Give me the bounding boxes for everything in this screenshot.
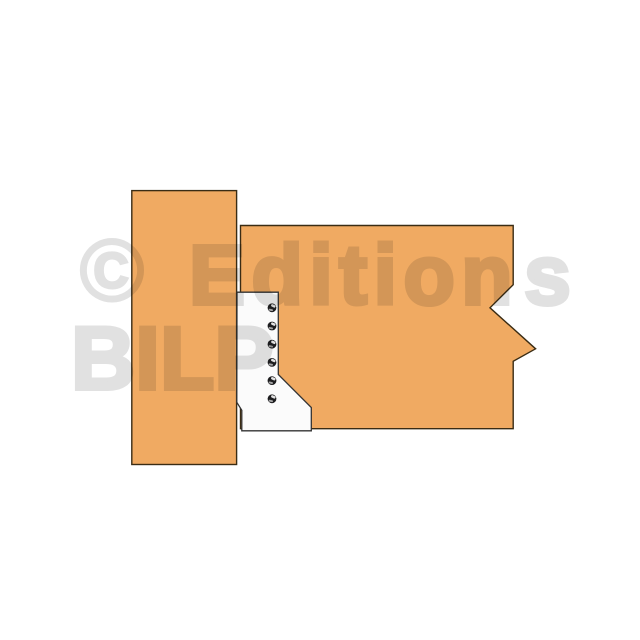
svg-text:©: © [80, 221, 145, 320]
svg-text:BILP: BILP [71, 308, 274, 408]
